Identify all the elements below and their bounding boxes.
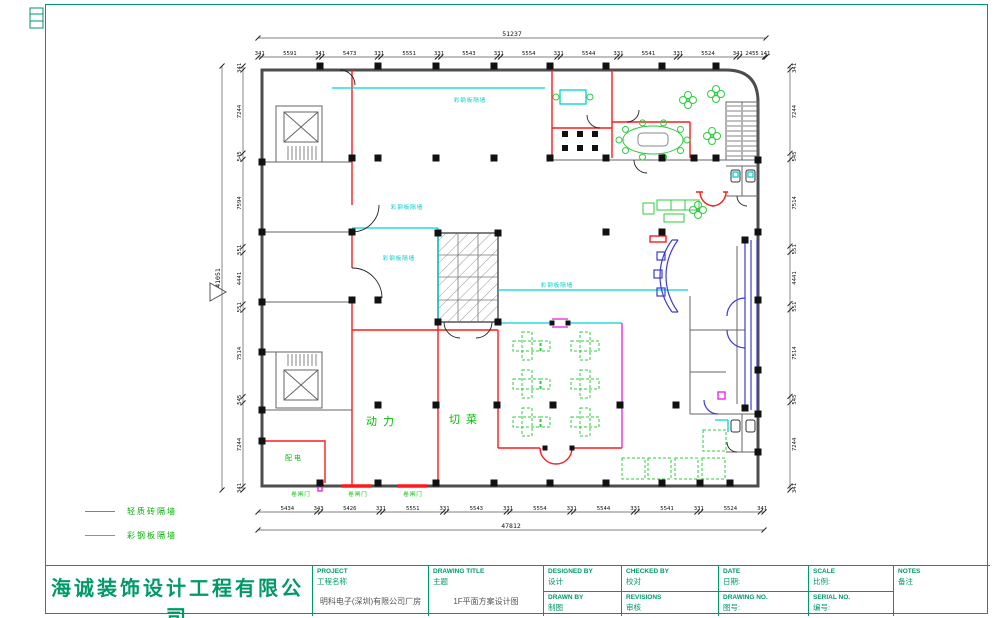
field-label: PROJECT <box>317 568 348 575</box>
company-name: 海诚装饰设计工程有限公司 <box>45 572 310 618</box>
structural-columns <box>259 63 762 487</box>
field-label-cn: 编号: <box>813 602 830 613</box>
field-label-cn: 图号: <box>723 602 740 613</box>
dim-label: 551 <box>792 244 798 254</box>
field-revisions: REVISIONS 审核 <box>621 592 718 616</box>
field-label-cn: 设计 <box>548 576 563 587</box>
field-label: DATE <box>723 568 740 575</box>
field-value: 1F平面方案设计图 <box>429 596 543 607</box>
field-label: DRAWING TITLE <box>433 568 484 575</box>
dim-label: 331 <box>503 506 513 512</box>
drawing-sheet: 5123734155913415473331555133155433315554… <box>0 0 1000 618</box>
dim-label: 5426 <box>343 506 356 512</box>
field-label-cn: 日期: <box>723 576 740 587</box>
dim-label: 331 <box>630 506 640 512</box>
field-label: SCALE <box>813 568 835 575</box>
dim-label: 341 <box>315 51 325 57</box>
dim-label: 341 <box>792 483 798 493</box>
dim-label: 331 <box>374 51 384 57</box>
dim-label: 545 <box>792 394 798 404</box>
legend-line-cyan <box>85 535 115 536</box>
dim-label: 5434 <box>281 506 295 512</box>
dim-label: 5554 <box>522 51 536 57</box>
dim-label: 7594 <box>237 196 243 210</box>
dim-label: 5541 <box>660 506 673 512</box>
dim-label: 5544 <box>582 51 596 57</box>
field-label-cn: 备注 <box>898 576 913 587</box>
dim-label: 331 <box>694 506 704 512</box>
dim-label: 7244 <box>237 437 243 451</box>
dim-label: 331 <box>673 51 683 57</box>
dim-label: 545 <box>792 151 798 161</box>
dim-label: 7244 <box>237 104 243 118</box>
dim-label: 331 <box>567 506 577 512</box>
dim-label: 341 <box>237 63 243 73</box>
title-block: 海诚装饰设计工程有限公司 SHENZHENSHI HAI CHENG DECOR… <box>45 565 990 615</box>
dim-label: 5543 <box>470 506 483 512</box>
dim-label: 5524 <box>724 506 738 512</box>
dim-label: 7514 <box>792 195 798 209</box>
dim-label: 545 <box>237 151 243 161</box>
dim-label: 5541 <box>642 51 655 57</box>
door-swings <box>340 70 747 452</box>
field-label-cn: 主题 <box>433 576 448 587</box>
dim-label: 331 <box>434 51 444 57</box>
dim-label: 2455 <box>745 51 758 57</box>
field-serial-no: SERIAL NO. 编号: <box>808 592 893 616</box>
company-block: 海诚装饰设计工程有限公司 SHENZHENSHI HAI CHENG DECOR… <box>45 566 310 616</box>
field-label-cn: 审核 <box>626 602 641 613</box>
dim-label: 331 <box>554 51 564 57</box>
field-drawn-by: DRAWN BY 制图 <box>543 592 621 616</box>
core-shaft <box>438 233 498 322</box>
dimension-lines: 5123734155913415473331555133155433315554… <box>214 30 798 533</box>
dim-label: 7514 <box>792 346 798 360</box>
legend-label: 彩钢板隔墙 <box>127 530 177 541</box>
field-label: DRAWING NO. <box>723 594 768 601</box>
dim-label: 4441 <box>792 271 798 284</box>
legend-row-steel: 彩钢板隔墙 <box>85 529 177 541</box>
field-label: NOTES <box>898 568 920 575</box>
field-label-cn: 工程名称 <box>317 576 347 587</box>
dim-label: 47812 <box>501 522 521 530</box>
field-label-cn: 比例: <box>813 576 830 587</box>
dim-label: 341 <box>757 506 767 512</box>
dim-label: 5551 <box>402 51 415 57</box>
dim-label: 331 <box>376 506 386 512</box>
field-label: DESIGNED BY <box>548 568 593 575</box>
dim-label: 341 <box>237 483 243 493</box>
dim-label: 551 <box>237 302 243 312</box>
entrance-blue <box>654 240 757 414</box>
legend-line-red <box>85 511 115 512</box>
field-label: REVISIONS <box>626 594 661 601</box>
dim-label: 51237 <box>502 30 522 38</box>
dim-label: 5554 <box>533 506 547 512</box>
dim-label: 551 <box>237 245 243 255</box>
dim-label: 7514 <box>237 346 243 360</box>
interior-walls <box>262 102 758 452</box>
field-drawing-title: DRAWING TITLE 主题 1F平面方案设计图 <box>428 566 543 616</box>
dim-label: 551 <box>792 302 798 312</box>
field-notes: NOTES 备注 <box>893 566 990 616</box>
dim-label: 4441 <box>237 272 243 285</box>
dim-label: 7244 <box>792 437 798 451</box>
dim-label: 341 <box>792 63 798 73</box>
dim-label: 341 <box>733 51 743 57</box>
dim-label: 41051 <box>214 268 222 288</box>
dim-label: 5543 <box>462 51 475 57</box>
dim-label: 5473 <box>343 51 356 57</box>
stair-treads <box>288 106 757 366</box>
legend-label: 轻质砖隔墙 <box>127 506 177 517</box>
sheet-stamp <box>30 8 43 28</box>
dim-label: 141 <box>760 51 770 57</box>
dim-label: 5551 <box>406 506 419 512</box>
dim-label: 341 <box>255 51 265 57</box>
outer-walls <box>262 70 758 486</box>
field-label: CHECKED BY <box>626 568 669 575</box>
furniture-green <box>513 86 726 480</box>
field-project: PROJECT 工程名称 明科电子(深圳)有限公司厂房 <box>312 566 428 616</box>
field-label-cn: 校对 <box>626 576 641 587</box>
dim-label: 7244 <box>792 104 798 118</box>
field-value: 明科电子(深圳)有限公司厂房 <box>313 596 428 607</box>
dim-label: 545 <box>237 395 243 405</box>
title-block-divider <box>543 591 893 592</box>
field-drawing-no: DRAWING NO. 图号: <box>718 592 808 616</box>
field-label: DRAWN BY <box>548 594 583 601</box>
dim-label: 343 <box>314 506 324 512</box>
dim-label: 331 <box>440 506 450 512</box>
dim-label: 5544 <box>597 506 611 512</box>
field-label-cn: 制图 <box>548 602 563 613</box>
legend-row-brick: 轻质砖隔墙 <box>85 505 177 517</box>
field-label: SERIAL NO. <box>813 594 850 601</box>
dim-label: 331 <box>494 51 504 57</box>
legend: 轻质砖隔墙 彩钢板隔墙 <box>85 505 177 553</box>
dim-label: 5591 <box>283 51 296 57</box>
dim-label: 331 <box>613 51 623 57</box>
dim-label: 5524 <box>701 51 715 57</box>
